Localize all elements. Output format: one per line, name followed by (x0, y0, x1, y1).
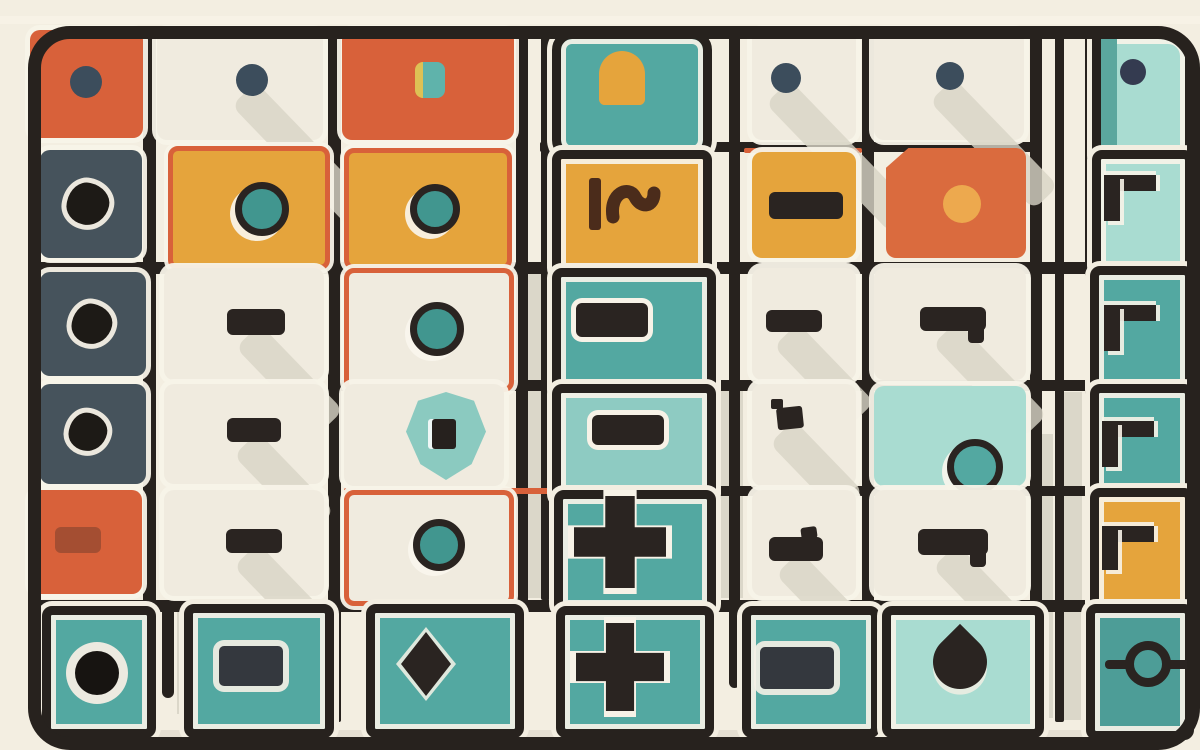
plus-icon (574, 496, 666, 588)
tile (874, 490, 1026, 596)
grid-line (729, 30, 740, 688)
ring-icon (947, 439, 1003, 495)
tile (366, 604, 524, 738)
shield-keyhole-icon (432, 419, 456, 449)
dash-icon (769, 537, 823, 561)
dash-tab-icon (800, 526, 818, 540)
bracket-icon (1104, 305, 1156, 351)
grid-line (162, 600, 174, 698)
tile (344, 148, 512, 270)
tile (552, 150, 712, 278)
rectangle-icon (760, 647, 834, 689)
dot-icon (236, 64, 268, 96)
dash-icon (55, 527, 101, 553)
tile (1092, 30, 1194, 160)
tile-edge-stripe (1101, 39, 1117, 151)
dash-icon (227, 309, 285, 335)
tile (1090, 488, 1194, 614)
tile (752, 384, 856, 486)
tile (344, 384, 504, 486)
dash-hook-icon (970, 552, 986, 567)
tile (40, 150, 142, 258)
tile (556, 606, 714, 738)
key-ring-icon (1125, 641, 1171, 687)
bracket-icon (1104, 175, 1156, 221)
bracket-bar-v (1102, 526, 1118, 570)
tile (886, 148, 1026, 258)
tile (752, 30, 856, 140)
dash-icon (227, 418, 281, 442)
dash-icon (226, 529, 282, 553)
tile (40, 384, 146, 484)
dot-icon (936, 62, 964, 90)
tile (42, 606, 156, 738)
bracket-bar-v (1102, 421, 1118, 467)
tile (552, 268, 716, 400)
tile (1086, 604, 1194, 740)
flag-tail-icon (771, 399, 783, 409)
dot-ring-icon (66, 642, 128, 704)
tile (874, 386, 1026, 486)
splat-icon (68, 300, 115, 347)
tile (742, 606, 880, 738)
dot-icon (771, 63, 801, 93)
tile (342, 30, 514, 140)
dash-hook-icon (968, 328, 984, 343)
latch-squiggle-icon (583, 175, 661, 233)
grid-line (541, 30, 550, 600)
tile (882, 606, 1044, 738)
tile (554, 490, 716, 614)
bracket-icon (1102, 421, 1154, 467)
ring-icon (413, 519, 465, 571)
tile (157, 30, 323, 140)
dash-icon (766, 310, 822, 332)
tile (164, 268, 324, 380)
diamond-icon (401, 632, 451, 696)
rectangle-icon (219, 646, 283, 686)
tile (164, 490, 324, 596)
grid-line (1055, 30, 1064, 722)
dash-icon (769, 192, 843, 219)
splat-icon (65, 409, 110, 454)
dot-icon (1120, 59, 1146, 85)
ring-icon (235, 182, 289, 236)
abstract-grid-illustration (0, 0, 1200, 750)
plus-icon (576, 623, 664, 711)
tile (1090, 266, 1194, 400)
tile (30, 490, 142, 594)
bracket-bar-v (1104, 305, 1120, 351)
bracket-icon (1102, 526, 1154, 570)
splat-icon (63, 179, 113, 229)
tile (184, 604, 334, 738)
tile (1092, 150, 1194, 276)
tile (344, 268, 514, 392)
shield-icon (406, 392, 486, 480)
tile (752, 490, 856, 596)
tile (344, 490, 514, 606)
tile (40, 272, 146, 376)
dot-icon (943, 185, 981, 223)
tile (168, 146, 330, 270)
dash-icon (592, 415, 664, 445)
small-square-icon (415, 62, 445, 98)
ring-icon (410, 302, 464, 356)
tile (752, 268, 856, 380)
flag-icon (776, 406, 804, 431)
tile (30, 30, 143, 138)
tile (552, 30, 712, 160)
drop-icon (922, 624, 998, 700)
tile (752, 152, 856, 258)
arch-icon (599, 51, 645, 105)
bracket-bar-v (1104, 175, 1120, 221)
tile (874, 268, 1026, 380)
dot-icon (70, 66, 102, 98)
background-shade (0, 16, 1200, 24)
tile (552, 384, 716, 504)
ring-icon (410, 184, 460, 234)
dash-icon (576, 303, 648, 337)
tile (164, 384, 324, 484)
tile (874, 30, 1024, 140)
